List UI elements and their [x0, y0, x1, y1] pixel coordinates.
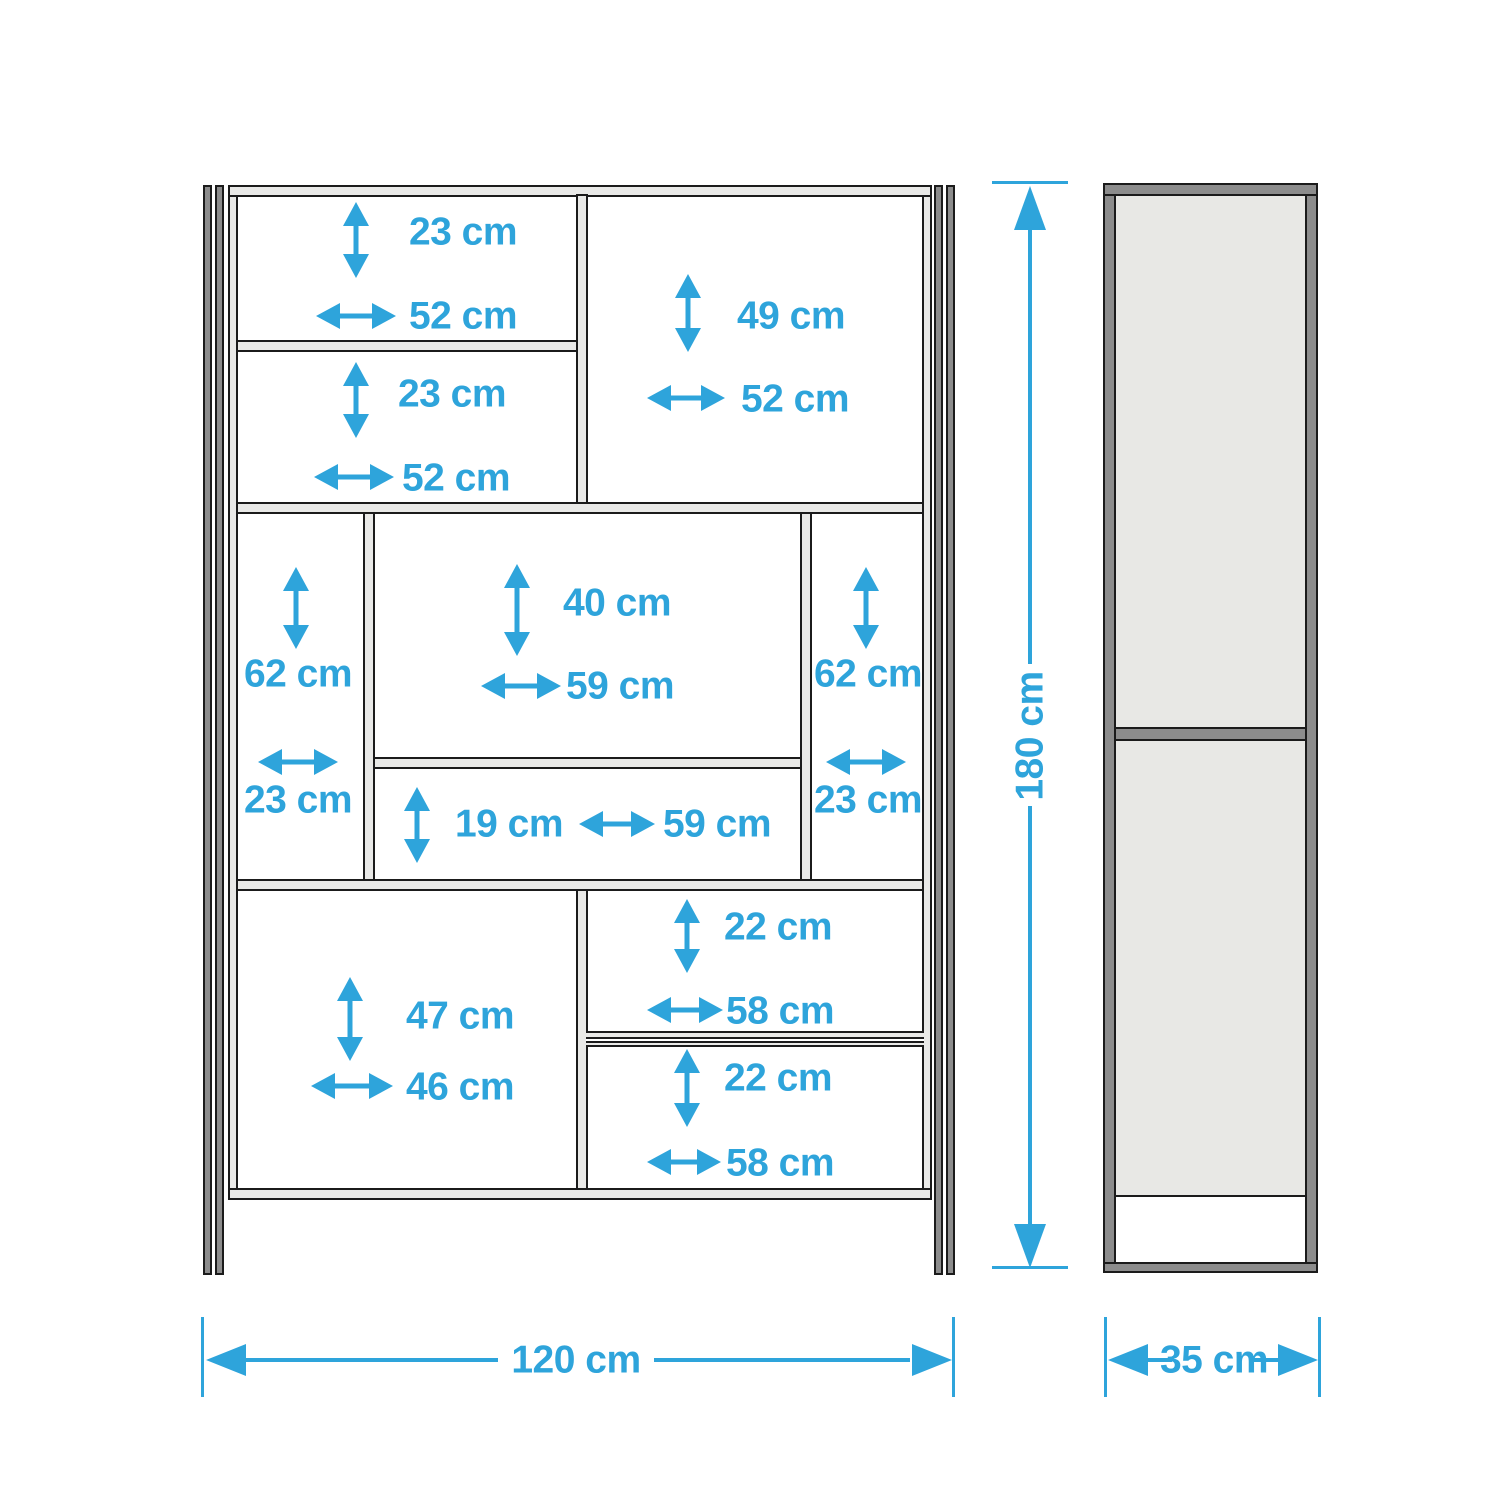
furniture-dimension-diagram: 23 cm 52 cm 23 cm 52 cm 49 cm 52 cm 62 c… [0, 0, 1500, 1500]
dimension-line [1254, 1358, 1280, 1362]
dimension-tick [992, 181, 1068, 184]
dimension-tick [201, 1317, 204, 1397]
compartment-width-label: 52 cm [402, 459, 510, 498]
front-leg-right-inner [934, 185, 943, 1275]
compartment-height-label: 23 cm [398, 375, 506, 414]
side-bottom-bar [1103, 1262, 1318, 1273]
width-arrow-icon [314, 463, 394, 491]
side-panel-right [922, 185, 932, 1200]
compartment-height-label: 19 cm [455, 805, 563, 844]
dimension-line [1028, 806, 1032, 1230]
shelf-top-left [236, 340, 578, 352]
compartment-height-label: 23 cm [409, 213, 517, 252]
height-arrow-icon [673, 899, 701, 973]
height-arrow-icon [852, 567, 880, 649]
overall-height-label: 180 cm [1011, 671, 1050, 800]
overall-depth-label: 35 cm [1160, 1341, 1268, 1380]
compartment-height-label: 22 cm [724, 908, 832, 947]
compartment-height-label: 22 cm [724, 1059, 832, 1098]
divider-middle-left [363, 512, 375, 882]
side-panel-left [228, 185, 238, 1200]
width-arrow-icon [579, 810, 655, 838]
compartment-width-label: 58 cm [726, 992, 834, 1031]
height-arrow-icon [342, 362, 370, 438]
shelf-middle-center [373, 757, 802, 769]
compartment-height-label: 49 cm [737, 297, 845, 336]
divider-middle-right [800, 512, 812, 882]
compartment-height-label: 62 cm [244, 655, 352, 694]
compartment-width-label: 52 cm [409, 297, 517, 336]
arrow-left-icon [1108, 1344, 1148, 1376]
dimension-line [244, 1358, 498, 1362]
width-arrow-icon [647, 996, 723, 1024]
dimension-line [1028, 222, 1032, 664]
compartment-width-label: 23 cm [814, 781, 922, 820]
front-leg-left-outer [203, 185, 212, 1275]
arrow-right-icon [912, 1344, 952, 1376]
compartment-width-label: 59 cm [566, 667, 674, 706]
dimension-tick [992, 1266, 1068, 1269]
width-arrow-icon [311, 1072, 393, 1100]
side-panel [1114, 194, 1307, 1197]
width-arrow-icon [826, 748, 906, 776]
height-arrow-icon [503, 564, 531, 656]
front-leg-right-outer [946, 185, 955, 1275]
height-arrow-icon [674, 274, 702, 352]
width-arrow-icon [481, 672, 561, 700]
overall-width-label: 120 cm [511, 1341, 640, 1380]
compartment-height-label: 40 cm [563, 584, 671, 623]
compartment-height-label: 62 cm [814, 655, 922, 694]
double-shelf-bottom-right [586, 1031, 924, 1047]
height-arrow-icon [403, 787, 431, 863]
width-arrow-icon [647, 384, 725, 412]
compartment-width-label: 59 cm [663, 805, 771, 844]
height-arrow-icon [673, 1049, 701, 1127]
compartment-width-label: 52 cm [741, 380, 849, 419]
height-arrow-icon [342, 202, 370, 278]
shelf-under-top-block [236, 502, 924, 514]
dimension-tick [952, 1317, 955, 1397]
compartment-width-label: 23 cm [244, 781, 352, 820]
height-arrow-icon [282, 567, 310, 649]
width-arrow-icon [258, 748, 338, 776]
dimension-line [654, 1358, 910, 1362]
front-leg-left-inner [215, 185, 224, 1275]
compartment-height-label: 47 cm [406, 997, 514, 1036]
arrow-left-icon [206, 1344, 246, 1376]
compartment-width-label: 58 cm [726, 1144, 834, 1183]
width-arrow-icon [647, 1148, 721, 1176]
height-arrow-icon [336, 977, 364, 1061]
arrow-down-icon [1014, 1224, 1046, 1268]
side-divider [1114, 727, 1307, 741]
dimension-tick [1318, 1317, 1321, 1397]
compartment-width-label: 46 cm [406, 1068, 514, 1107]
width-arrow-icon [316, 302, 396, 330]
arrow-right-icon [1278, 1344, 1318, 1376]
dimension-tick [1104, 1317, 1107, 1397]
